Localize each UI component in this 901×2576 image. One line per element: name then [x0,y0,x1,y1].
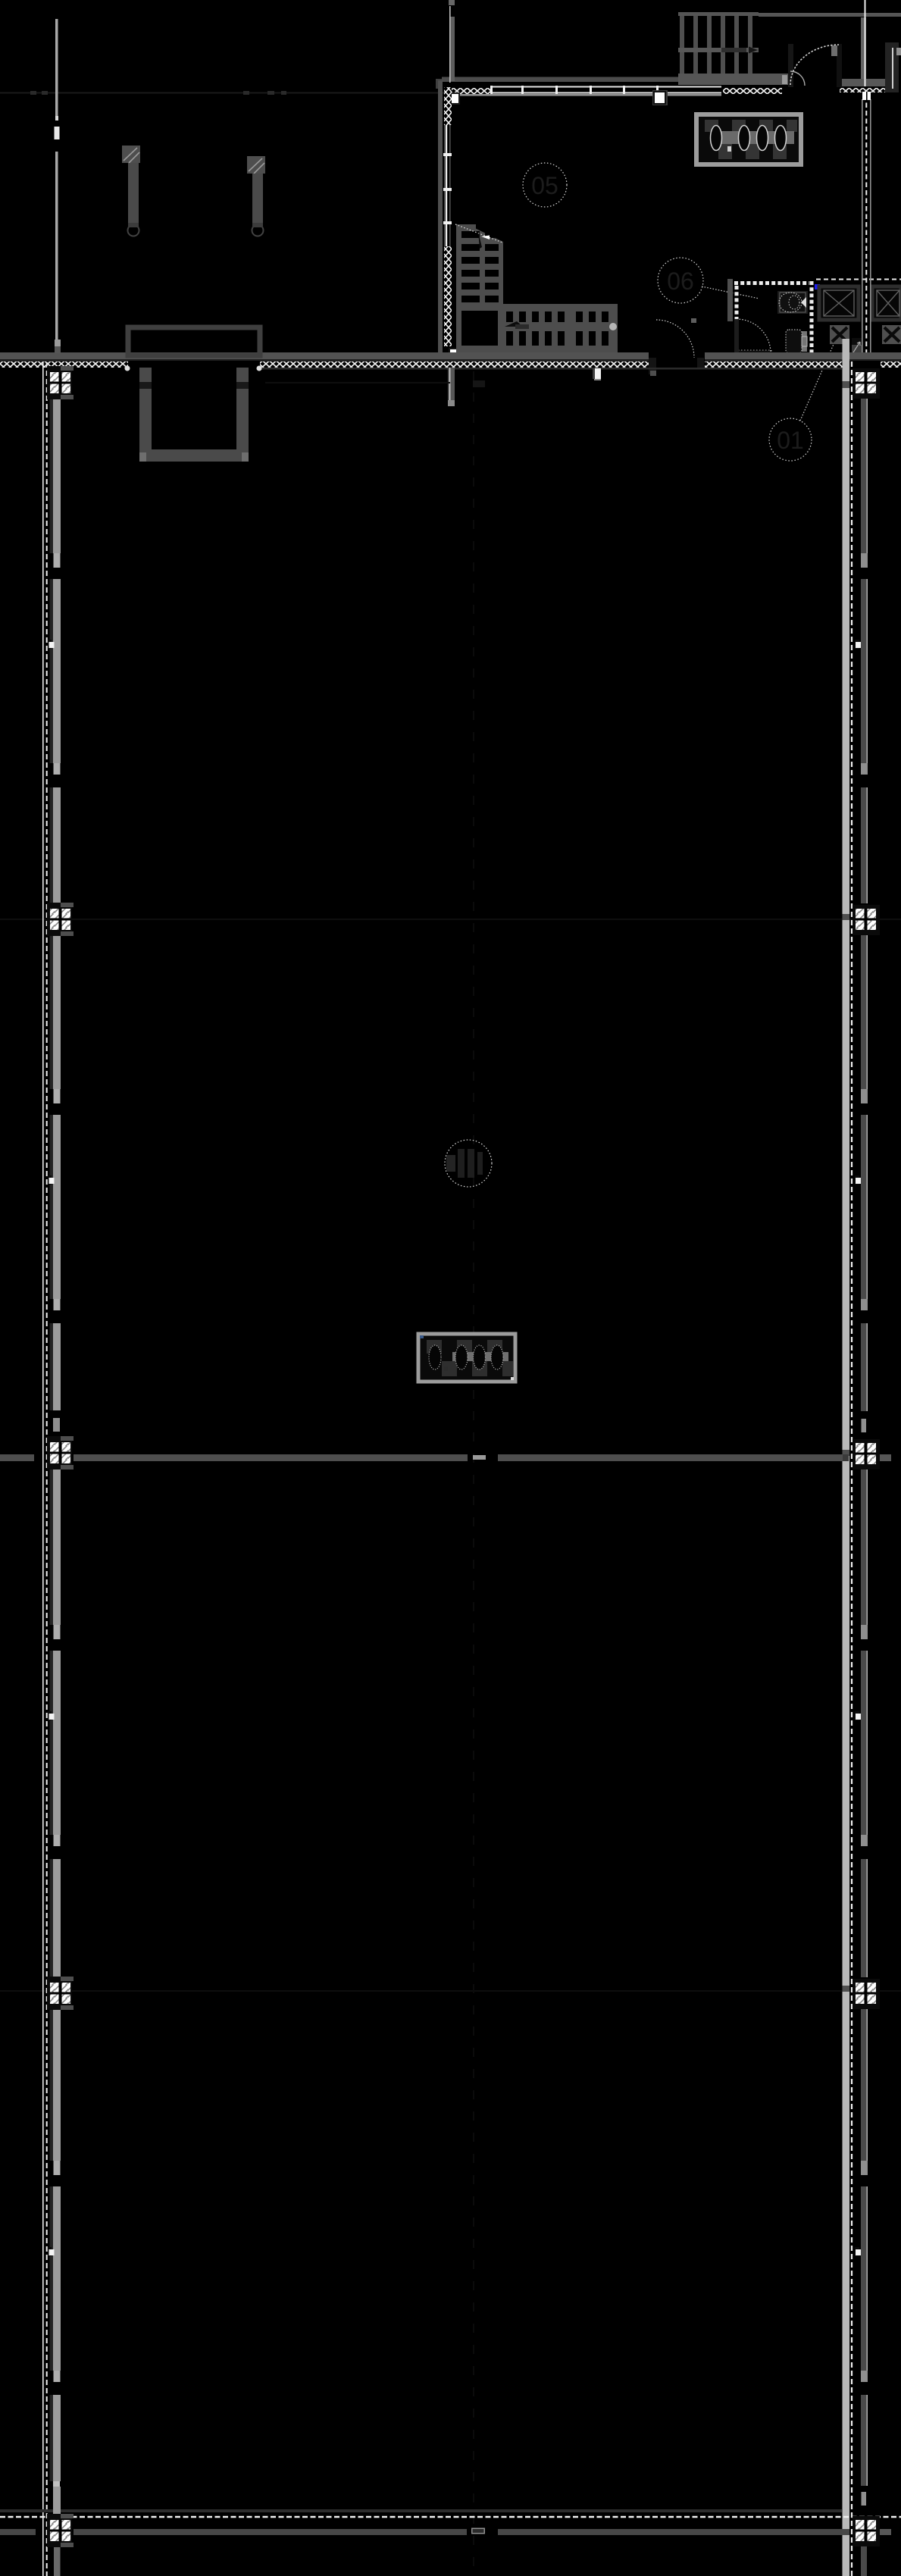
svg-text:05: 05 [531,172,558,199]
svg-text:06: 06 [667,268,694,295]
svg-text:01: 01 [777,427,804,454]
